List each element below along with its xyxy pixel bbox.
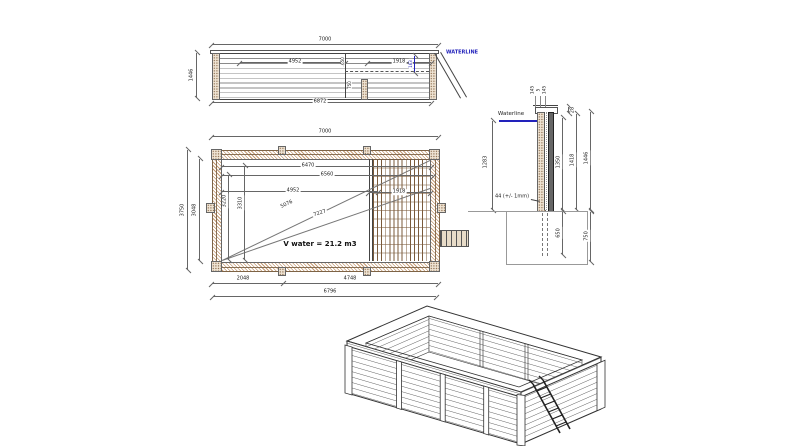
elevation-dim-line-left — [196, 53, 197, 98]
plan-stiffener-bottom-2 — [363, 267, 371, 276]
section-dim-line-total — [590, 112, 591, 210]
isometric-view — [330, 300, 630, 446]
plan-dim-vb: 3220 — [222, 194, 228, 209]
section-liner-dotted-line — [546, 112, 547, 210]
section-cap-leader-3 — [545, 96, 546, 107]
plan-dim-line-vb — [228, 175, 229, 260]
plan-corner-post-tl — [211, 149, 222, 160]
section-cap-leader-2 — [540, 96, 541, 107]
elevation-dim-lower-small: 750 — [348, 80, 352, 90]
plan-stiffener-right — [437, 203, 446, 213]
plan-dim-line-top — [212, 136, 438, 137]
plan-corner-post-tr — [429, 149, 440, 160]
plan-stiffener-top-1 — [278, 146, 286, 155]
plan-volume-label: V water = 21.2 m3 — [282, 241, 357, 249]
section-thickness-label: 44 (+/- 1mm) — [494, 194, 530, 200]
section-dim-depth: 1283 — [483, 155, 489, 170]
section-ground-line — [468, 211, 506, 212]
elevation-dim-left: 1446 — [189, 68, 195, 83]
isometric-pool-drawing — [330, 300, 630, 446]
elevation-waterline-dim: 163 — [409, 59, 413, 69]
plan-dim-c: 4952 — [286, 188, 301, 194]
plan-dim-va: 3310 — [238, 196, 244, 211]
elevation-brace-line-2 — [440, 52, 467, 98]
plan-dim-inner-h: 3048 — [192, 203, 198, 218]
plan-ladder — [440, 230, 469, 247]
plan-dim-line-bottom-1 — [212, 283, 438, 284]
section-dim-line-below-outer — [590, 212, 591, 262]
plan-dim-ba: 2048 — [236, 276, 251, 282]
section-dim-inner: 1350 — [556, 155, 562, 170]
section-dim-total: 1446 — [584, 151, 590, 166]
elevation-dim-bottom: 6872 — [313, 99, 328, 105]
section-cap-leader-1 — [535, 96, 536, 107]
plan-dim-line-inner-h — [199, 159, 200, 261]
plan-corner-post-br — [429, 261, 440, 272]
elevation-dim-mid: 4952 — [288, 59, 303, 65]
section-dim-below-inner: 650 — [556, 227, 562, 239]
elevation-left-post — [212, 53, 220, 100]
section-dim-mid: 1418 — [570, 153, 576, 168]
plan-dim-b: 6560 — [320, 172, 335, 178]
plan-dim-deck: 1918 — [392, 189, 407, 195]
plan-dim-bc: 6796 — [323, 289, 338, 295]
section-outer-board — [548, 112, 554, 212]
plan-stiffener-top-2 — [363, 146, 371, 155]
plan-corner-post-bl — [211, 261, 222, 272]
elevation-post-detail — [361, 79, 368, 100]
plan-dim-line-a — [222, 166, 431, 167]
plan-dim-bb: 4748 — [343, 276, 358, 282]
elevation-waterline-label: WATERLINE — [445, 50, 479, 56]
section-buried-post-dashed-2 — [547, 213, 548, 256]
elevation-deck-dashed-line — [345, 71, 429, 72]
plan-stiffener-bottom-1 — [278, 267, 286, 276]
plan-dim-line-va — [244, 166, 245, 260]
section-dim-line-depth — [492, 121, 493, 210]
section-dim-line-mid — [576, 114, 577, 210]
plan-dim-line-outer-h — [187, 150, 188, 270]
section-dim-line-inner — [562, 118, 563, 210]
plan-stiffener-left — [206, 203, 215, 213]
elevation-dim-line-top — [212, 44, 438, 45]
section-cap-dim-3: 145 — [544, 85, 549, 96]
plan-dim-line-bottom-2 — [213, 296, 436, 297]
elevation-waterline-dim-line — [414, 56, 415, 73]
section-dim-line-below-inner — [562, 212, 563, 255]
plan-dim-top: 7000 — [318, 129, 333, 135]
section-dim-below-outer: 750 — [584, 230, 590, 242]
drawing-sheet: 7000 4952 1918 163 WATERLINE 650 750 144… — [0, 0, 794, 446]
section-waterline-label: Waterline — [497, 111, 525, 117]
section-buried-post-dashed-1 — [542, 213, 543, 256]
elevation-dim-top: 7000 — [318, 37, 333, 43]
elevation-dim-right: 1918 — [392, 59, 407, 65]
elevation-brace-line-1 — [434, 53, 461, 99]
plan-dim-a: 6470 — [301, 163, 316, 169]
elevation-dim-upper-small: 650 — [341, 56, 345, 66]
plan-dim-outer-h: 3750 — [180, 203, 186, 218]
section-waterline-line — [499, 120, 537, 122]
